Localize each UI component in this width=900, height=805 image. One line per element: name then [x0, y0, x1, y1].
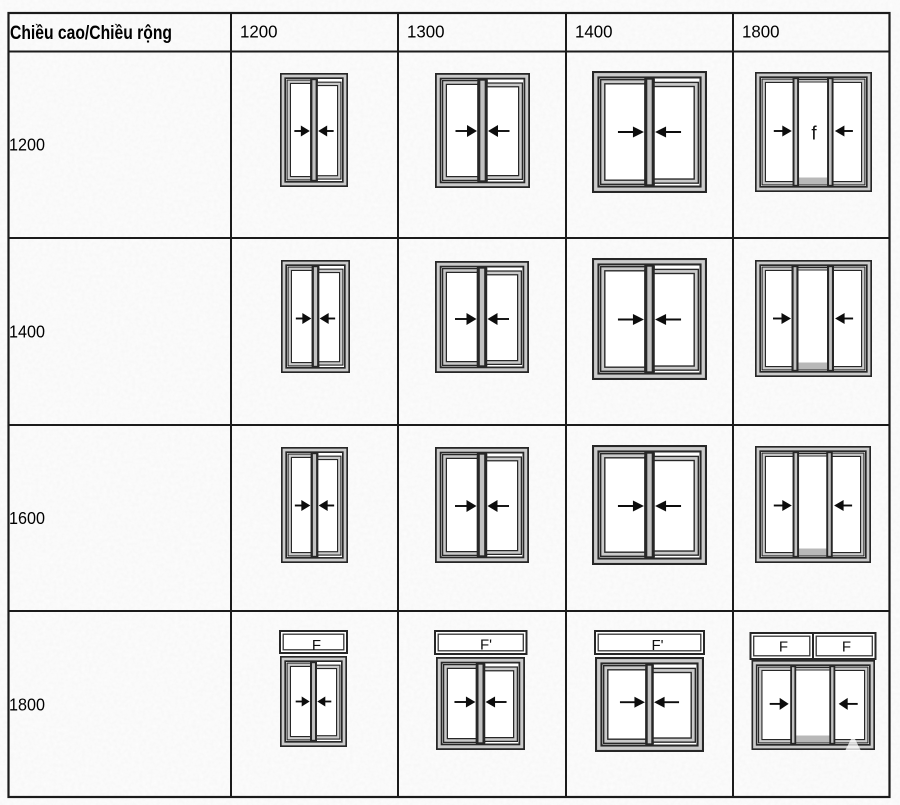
svg-text:F': F'	[480, 637, 492, 654]
svg-text:1800: 1800	[742, 22, 780, 42]
svg-text:F: F	[312, 637, 321, 654]
svg-text:1200: 1200	[9, 135, 45, 155]
svg-text:1800: 1800	[9, 695, 45, 715]
svg-text:1300: 1300	[407, 22, 445, 42]
svg-text:1400: 1400	[9, 322, 45, 342]
svg-text:1600: 1600	[9, 508, 45, 528]
svg-text:F: F	[842, 639, 851, 656]
svg-text:1200: 1200	[240, 22, 278, 42]
svg-text:1400: 1400	[575, 22, 613, 42]
svg-text:F': F'	[651, 637, 663, 654]
svg-text:F: F	[779, 639, 788, 656]
svg-text:f: f	[811, 124, 817, 145]
svg-text:Chiều cao/Chiều rộng: Chiều cao/Chiều rộng	[10, 23, 172, 44]
